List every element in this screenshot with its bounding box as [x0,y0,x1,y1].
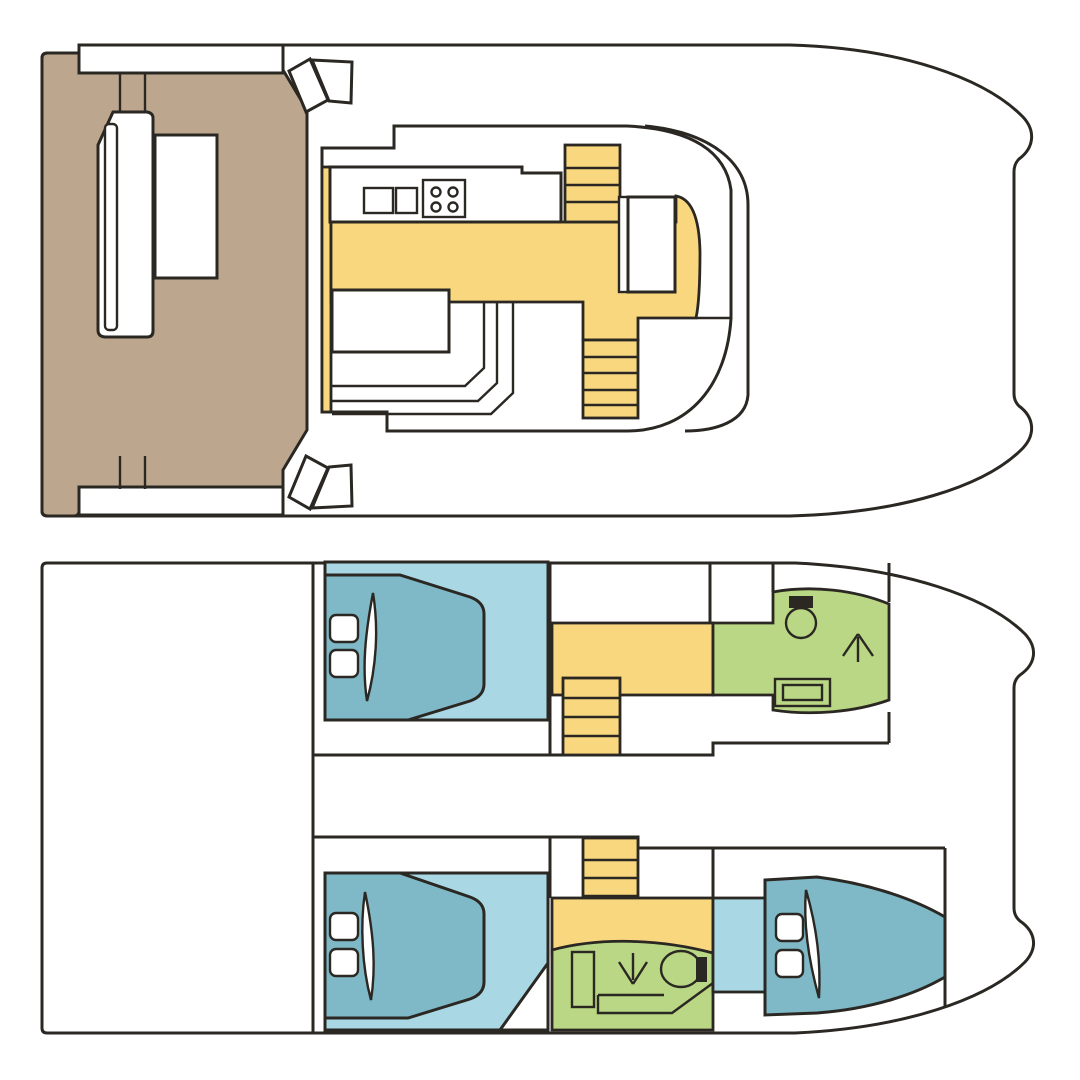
pillow-icon [330,650,358,677]
bed-icon [325,575,484,720]
pillow-icon [776,950,803,977]
starboard-aft-cabin [325,562,548,720]
cockpit-floor [42,53,307,516]
stove-icon [423,180,465,217]
port-bathroom [552,941,713,1030]
upper-deck [42,45,1032,516]
stairs-icon-down [583,340,638,418]
cockpit-table [155,135,217,278]
port-mid-corridor [713,898,767,992]
washbasin-icon [775,679,830,706]
port-aft-cabin [325,873,548,1030]
catamaran-floor-plan [0,0,1080,1080]
sink-icon [364,188,393,213]
pillow-icon [330,615,358,642]
pillow-icon [330,949,358,976]
toilet-icon [786,596,816,638]
transom-platform-top [79,45,283,73]
pillow-icon [330,913,358,940]
shower-tray-icon [572,952,594,1007]
cockpit-bench-cushion [105,124,117,330]
stairs-icon [563,678,620,755]
saloon [322,126,748,431]
pillow-icon [776,914,803,941]
stairs-icon-up [565,145,620,222]
floor-plan-canvas [0,0,1080,1080]
helm-seat [628,197,675,292]
bed-icon [325,873,484,1018]
lower-deck [42,562,1034,1033]
transom-platform-bottom [79,487,283,515]
saloon-table [332,290,449,352]
sink-icon [396,188,417,213]
